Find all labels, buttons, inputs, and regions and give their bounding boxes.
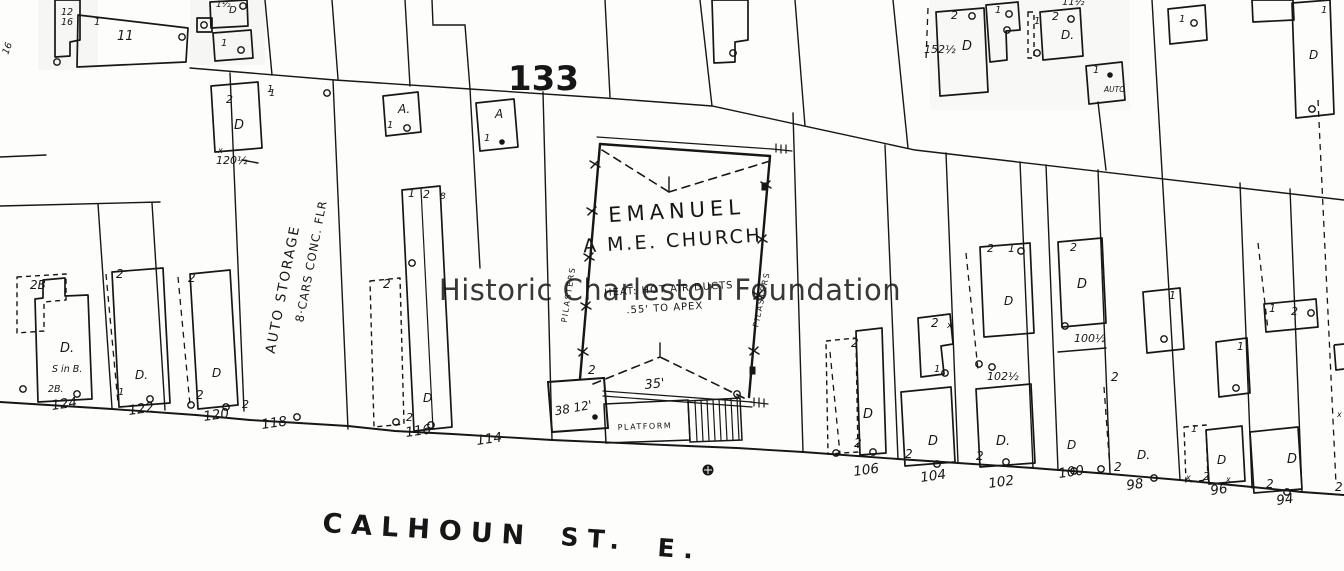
lot-label: 2 xyxy=(242,398,249,411)
map-texts: 133 EMANUEL A M.E. CHURCH HEAT: HOT AIR … xyxy=(263,59,901,565)
lot-label: D xyxy=(423,391,432,405)
street-number: 104 xyxy=(919,467,947,486)
auto-storage-line2: 8·CARS CONC. FLR xyxy=(292,199,329,323)
opening-circle xyxy=(324,90,330,96)
filled-dot xyxy=(592,414,598,420)
pilaster-tick-marks xyxy=(578,160,771,356)
lot-label: x xyxy=(1185,473,1191,482)
lot-label: 2 xyxy=(423,188,430,201)
opening-circle xyxy=(409,260,415,266)
lot-label: 2 xyxy=(854,436,862,450)
block-number: 133 xyxy=(508,59,579,99)
lot-label: D xyxy=(212,366,221,380)
lot-label: 8 xyxy=(440,192,446,202)
lot-label: 11 xyxy=(117,29,134,44)
watermark-text: Historic Charleston Foundation xyxy=(439,273,901,307)
church-front-dimension: 35' xyxy=(644,376,666,393)
auto-storage-line1: AUTO STORAGE xyxy=(263,224,304,355)
street-number: 120 xyxy=(202,406,230,425)
church-name-line1: EMANUEL xyxy=(608,195,746,227)
opening-circle xyxy=(188,402,194,408)
lot-label: 1 xyxy=(1034,16,1040,27)
lot-label: 1 xyxy=(221,38,227,49)
opening-circle xyxy=(1161,336,1167,342)
street-name: CALHOUN xyxy=(322,508,534,552)
lot-label: 2 xyxy=(1266,477,1274,491)
lot-label: A xyxy=(494,107,503,121)
street-number: 94 xyxy=(1275,491,1294,509)
lot-label: 1 xyxy=(1169,289,1176,302)
porch-story-label: 2 xyxy=(588,363,596,377)
opening-circle xyxy=(1191,20,1197,26)
map-drawing: 133 EMANUEL A M.E. CHURCH HEAT: HOT AIR … xyxy=(0,0,1344,571)
filled-dot xyxy=(499,139,505,145)
lot-label: D xyxy=(928,434,938,449)
lot-label: 1 xyxy=(995,5,1001,16)
lot-label: D. xyxy=(1137,448,1150,462)
lot-label: x xyxy=(1336,410,1342,419)
lot-label: 2 xyxy=(383,277,391,291)
lot-label: x xyxy=(1225,475,1231,484)
lot-label: 2 xyxy=(931,316,939,330)
lot-label: D xyxy=(229,5,237,16)
lot-label: 1 xyxy=(94,17,100,28)
lot-label: 2 xyxy=(1291,305,1298,318)
lot-label: S in B. xyxy=(52,364,82,375)
lot-label: 2 xyxy=(976,449,984,463)
lot-label: D xyxy=(1077,277,1087,292)
lot-label: D xyxy=(1287,452,1297,467)
lot-label: 1 xyxy=(484,133,490,144)
opening-circle xyxy=(1309,106,1315,112)
lot-label: D xyxy=(1004,294,1013,308)
lot-label: 1 xyxy=(387,120,393,131)
lot-label: 1 xyxy=(1191,424,1197,435)
lot-label: 1 xyxy=(118,387,124,398)
lot-label: 100½ xyxy=(1074,332,1106,345)
street-abbrev: ST. xyxy=(560,522,630,556)
opening-circle xyxy=(1003,459,1009,465)
lot-label: D. xyxy=(1061,28,1074,42)
lot-label: D xyxy=(1067,438,1076,452)
lot-label: x xyxy=(946,321,953,331)
lot-label: 2 xyxy=(1203,470,1210,483)
lot-label: 1 xyxy=(1321,5,1327,16)
lot-label: A. xyxy=(397,102,410,116)
opening-circle xyxy=(294,414,300,420)
lot-label: D xyxy=(1217,453,1226,467)
church-name-line2: A M.E. CHURCH xyxy=(582,225,762,258)
lot-label: 2 xyxy=(987,242,994,255)
opening-circle xyxy=(20,386,26,392)
street-number: 100 xyxy=(1057,463,1085,482)
lot-label: D. xyxy=(996,434,1010,449)
lot-label: 1 xyxy=(1093,65,1099,76)
lot-label: 1 xyxy=(1179,14,1185,25)
lot-label: 1 xyxy=(934,364,940,375)
street-number: 116 xyxy=(404,422,432,441)
filled-dot xyxy=(1107,72,1113,78)
opening-circle xyxy=(1308,310,1314,316)
lot-label: 2 xyxy=(1335,480,1343,494)
lot-label: D xyxy=(234,118,244,133)
lot-label: 2 xyxy=(951,9,958,22)
lot-label: 1 xyxy=(408,187,415,200)
lot-label: 2 xyxy=(1111,370,1119,384)
lot-label: 1 xyxy=(269,88,275,99)
lot-label: 11½ xyxy=(1062,0,1085,8)
lot-label: D xyxy=(1309,48,1318,62)
lot-label: 152½ xyxy=(924,43,956,56)
lot-label: 2 xyxy=(1070,241,1077,254)
street-number: 106 xyxy=(852,461,880,480)
platform-label: PLATFORM xyxy=(617,421,672,432)
street-number: 118 xyxy=(260,414,288,433)
opening-circle xyxy=(179,34,185,40)
street-number: 122 xyxy=(127,400,155,419)
lot-label: 2 xyxy=(905,447,913,461)
lot-label: 120½ xyxy=(216,154,248,167)
opening-circle xyxy=(404,125,410,131)
opening-circle xyxy=(942,370,948,376)
street-number: 98 xyxy=(1125,476,1144,494)
lot-label: 2B. xyxy=(48,384,64,395)
rear-building-dimension: 38 12' xyxy=(554,398,594,418)
sanborn-map-canvas: 133 EMANUEL A M.E. CHURCH HEAT: HOT AIR … xyxy=(0,0,1344,571)
lot-label: 2 xyxy=(1052,10,1059,23)
lot-label: 102½ xyxy=(987,370,1019,383)
lot-label: 2 xyxy=(116,267,124,281)
hydrant-symbol xyxy=(703,465,714,476)
lot-label: 2 xyxy=(226,93,233,106)
opening-circle xyxy=(1098,466,1104,472)
street-number: 114 xyxy=(475,430,503,449)
street-number: 102 xyxy=(987,473,1015,492)
lot-label: 1 xyxy=(1008,242,1015,255)
lot-label: D xyxy=(962,39,972,54)
lot-label: 2 xyxy=(188,271,196,285)
lot-label: 16 xyxy=(0,41,14,56)
street-number: 124 xyxy=(50,395,78,414)
opening-circle xyxy=(1233,385,1239,391)
lot-label: 2 xyxy=(851,336,859,350)
lot-label: 1 xyxy=(1269,302,1276,315)
street-direction: E. xyxy=(657,533,703,565)
lot-label: 2 xyxy=(196,388,204,402)
lot-label: D. xyxy=(135,368,148,382)
lot-label: 1 xyxy=(1237,340,1244,353)
lot-label: AUTO xyxy=(1103,85,1125,94)
lot-label: 2B xyxy=(30,278,46,292)
lot-label: D xyxy=(863,407,873,422)
lot-label: D. xyxy=(60,341,74,356)
lot-label: 16 xyxy=(61,17,73,28)
lot-label: 2 xyxy=(406,411,413,424)
lot-label: 2 xyxy=(1114,460,1122,474)
